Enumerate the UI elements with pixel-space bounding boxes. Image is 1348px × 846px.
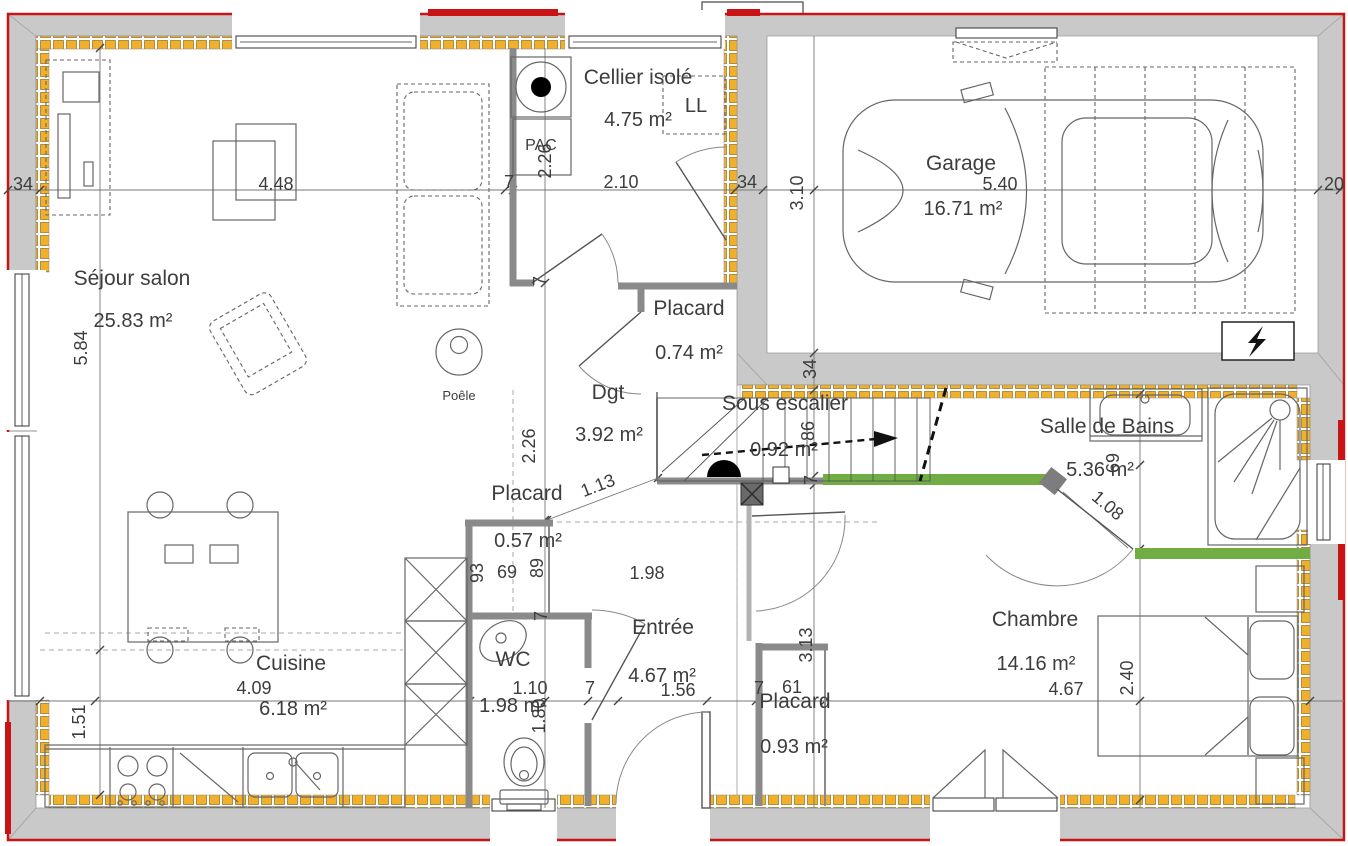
room-name-label: Garage (926, 152, 996, 175)
room-name-label: Cuisine (256, 652, 326, 675)
dimension-label: 34 (800, 359, 820, 379)
room-name-label: Entrée (632, 616, 694, 639)
green-partition-bathroom (1135, 548, 1310, 559)
dimension-label: 2.26 (519, 428, 539, 463)
dimension-label: 1.80 (529, 698, 549, 733)
dimension-label: 5.84 (71, 330, 91, 365)
room-area-label: 0.92 m² (750, 439, 818, 461)
room-name-label: Salle de Bains (1040, 415, 1174, 438)
green-partition-stairs (823, 474, 1053, 485)
dimension-label: 7 (530, 276, 550, 286)
dimension-label: 34 (13, 174, 33, 194)
dimension-label: 1.56 (660, 680, 695, 700)
room-area-label: 25.83 m² (94, 310, 173, 332)
floor-plan-page: Séjour salon25.83 m²Cuisine6.18 m²WC1.98… (0, 0, 1348, 846)
dimension-label: 1.51 (69, 704, 89, 739)
room-area-label: 6.18 m² (259, 698, 327, 720)
room-area-label: 0.74 m² (655, 342, 723, 364)
room-area-label: 5.36 m² (1066, 459, 1134, 481)
dimension-label: 69 (1103, 453, 1123, 473)
room-name-label: Dgt (592, 381, 625, 404)
dimension-label: 4.09 (236, 678, 271, 698)
dimension-label: 7 (531, 611, 551, 621)
dimension-label: 7 (754, 678, 764, 698)
front-door-opening (616, 794, 710, 843)
dimension-label: 7 (801, 475, 821, 485)
dimension-label: 4.67 (1048, 679, 1083, 699)
dimension-label: 4.48 (258, 174, 293, 194)
garage-door-panel (956, 28, 1057, 38)
floor-plan-canvas: Séjour salon25.83 m²Cuisine6.18 m²WC1.98… (0, 0, 1348, 846)
dimension-label: 61 (782, 677, 802, 697)
stair-post (773, 467, 789, 483)
dimension-label: 7 (504, 172, 514, 192)
room-name-label: Chambre (992, 608, 1078, 631)
dimension-label: 20 (1324, 174, 1344, 194)
dimension-label: 93 (467, 563, 487, 583)
dimension-label: 3.13 (796, 627, 816, 662)
equipment-label: Poêle (442, 388, 475, 403)
dimension-label: 2.40 (1117, 660, 1137, 695)
electrical-panel-icon (1222, 322, 1294, 360)
room-area-label: 0.93 m² (760, 736, 828, 758)
room-area-label: 4.75 m² (604, 109, 672, 131)
room-name-label: Sous escalier (722, 392, 848, 415)
room-area-label: 16.71 m² (924, 198, 1003, 220)
room-name-label: Cellier isolé (584, 66, 693, 89)
room-name-label: Placard (653, 297, 724, 320)
room-area-label: 14.16 m² (997, 653, 1076, 675)
room-name-label: WC (496, 648, 531, 671)
dimension-label: 7 (585, 678, 595, 698)
dimension-label: 89 (527, 558, 547, 578)
room-area-label: 0.57 m² (494, 530, 562, 552)
dimension-label: 3.10 (787, 175, 807, 210)
room-area-label: 3.92 m² (575, 424, 643, 446)
room-name-label: Placard (491, 482, 562, 505)
dimension-label: 34 (737, 172, 757, 192)
dimension-label: 1.10 (512, 678, 547, 698)
dimension-label: 86 (798, 421, 818, 441)
dimension-label: 1.98 (629, 563, 664, 583)
dimension-label: 5.40 (982, 174, 1017, 194)
room-name-label: Séjour salon (74, 267, 191, 290)
equipment-label: LL (685, 95, 707, 117)
duct-shaft (741, 483, 763, 505)
dimension-label: 2.10 (603, 172, 638, 192)
equipment-label: PAC (525, 137, 557, 154)
dimension-label: 69 (497, 562, 517, 582)
